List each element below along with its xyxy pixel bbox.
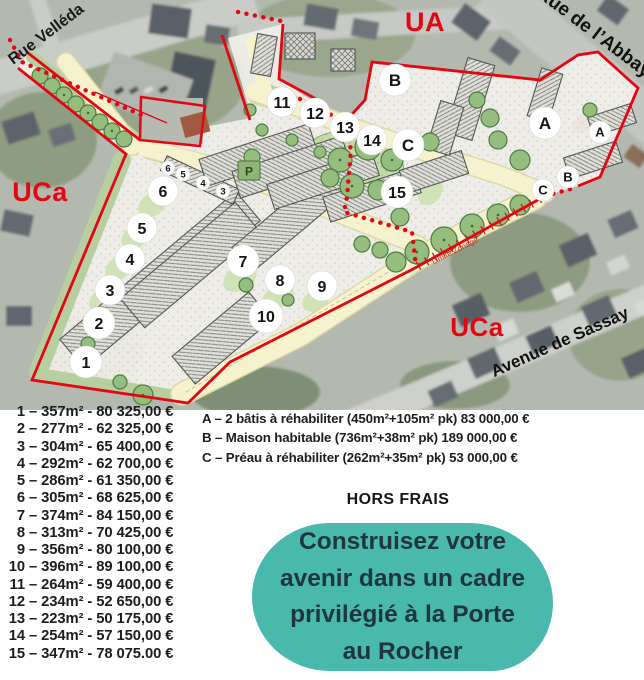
lot-marker-A: A bbox=[589, 121, 611, 143]
lot-marker-6: 6 bbox=[161, 161, 175, 175]
fees-note: HORS FRAIS bbox=[327, 491, 469, 509]
lot-marker-13: 13 bbox=[330, 112, 360, 142]
svg-text:B: B bbox=[563, 170, 572, 185]
svg-text:2: 2 bbox=[95, 316, 104, 333]
lot-price-row: 3 – 304m² - 65 400,00 € bbox=[5, 439, 173, 456]
cta-text-line: Construisez votre bbox=[299, 524, 506, 561]
svg-text:13: 13 bbox=[336, 120, 354, 137]
lot-marker-B: B bbox=[557, 166, 579, 188]
lot-price-row: 8 – 313m² - 70 425,00 € bbox=[5, 525, 173, 542]
svg-text:6: 6 bbox=[165, 163, 170, 174]
lot-price-row: 2 – 277m² - 62 325,00 € bbox=[5, 421, 173, 438]
svg-text:9: 9 bbox=[318, 279, 327, 296]
building-price-list: A – 2 bâtis à réhabiliter (450m²+105m² p… bbox=[202, 409, 529, 467]
zone-label-ua: UA bbox=[405, 7, 445, 37]
svg-text:C: C bbox=[538, 183, 548, 198]
svg-text:5: 5 bbox=[138, 221, 147, 238]
lot-marker-2: 2 bbox=[83, 307, 115, 339]
lot-price-row: 5 – 286m² - 61 350,00 € bbox=[5, 473, 173, 490]
lot-price-row: 1 – 357m² - 80 325,00 € bbox=[5, 404, 173, 421]
svg-text:A: A bbox=[595, 125, 605, 140]
lot-price-row: 14 – 254m² - 57 150,00 € bbox=[5, 628, 173, 645]
svg-text:10: 10 bbox=[257, 309, 275, 326]
lot-price-row: 9 – 356m² - 80 100,00 € bbox=[5, 542, 173, 559]
svg-text:4: 4 bbox=[200, 178, 206, 189]
lot-marker-10: 10 bbox=[249, 299, 283, 333]
svg-text:7: 7 bbox=[239, 254, 248, 271]
svg-text:B: B bbox=[389, 71, 401, 90]
lot-marker-5: 5 bbox=[127, 213, 157, 243]
lot-marker-6: 6 bbox=[148, 176, 178, 206]
parking-label: P bbox=[245, 164, 253, 178]
lot-marker-A: A bbox=[529, 107, 561, 139]
svg-text:A: A bbox=[539, 114, 551, 133]
svg-text:12: 12 bbox=[306, 106, 324, 123]
building-price-row: A – 2 bâtis à réhabiliter (450m²+105m² p… bbox=[202, 409, 529, 428]
zone-label-uca-left: UCa bbox=[12, 177, 68, 207]
lot-marker-11: 11 bbox=[267, 87, 297, 117]
lot-marker-14: 14 bbox=[357, 125, 387, 155]
lot-marker-C: C bbox=[392, 129, 424, 161]
cta-text-line: avenir dans un cadre bbox=[280, 561, 525, 598]
svg-text:1: 1 bbox=[82, 355, 91, 372]
lot-marker-15: 15 bbox=[381, 176, 413, 208]
lot-price-row: 12 – 234m² - 52 650,00 € bbox=[5, 594, 173, 611]
lot-price-row: 6 – 305m² - 68 625,00 € bbox=[5, 490, 173, 507]
lot-marker-C: C bbox=[532, 179, 554, 201]
lot-price-row: 7 – 374m² - 84 150,00 € bbox=[5, 508, 173, 525]
cta-text-line: au Rocher bbox=[343, 634, 463, 671]
zone-label-uca-right: UCa bbox=[450, 312, 504, 342]
svg-text:14: 14 bbox=[363, 133, 381, 150]
lot-price-row: 10 – 396m² - 89 100,00 € bbox=[5, 559, 173, 576]
lot-marker-9: 9 bbox=[307, 271, 337, 301]
building-price-row: B – Maison habitable (736m²+38m² pk) 189… bbox=[202, 428, 529, 447]
site-plan-svg: 123456789101112131415ABCABC6543 UAUCaUCa… bbox=[0, 0, 644, 410]
flyer-page: 123456789101112131415ABCABC6543 UAUCaUCa… bbox=[0, 0, 644, 680]
lot-price-row: 15 – 347m² - 78 075.00 € bbox=[5, 646, 173, 663]
svg-text:15: 15 bbox=[388, 185, 406, 202]
svg-text:4: 4 bbox=[126, 252, 135, 269]
lot-marker-4: 4 bbox=[196, 176, 210, 190]
lot-marker-3: 3 bbox=[216, 184, 230, 198]
svg-text:3: 3 bbox=[106, 283, 115, 300]
svg-text:5: 5 bbox=[180, 169, 186, 180]
svg-text:3: 3 bbox=[220, 186, 225, 197]
svg-text:C: C bbox=[402, 136, 414, 155]
lot-marker-7: 7 bbox=[227, 245, 259, 277]
lot-marker-1: 1 bbox=[70, 346, 102, 378]
cta-banner: Construisez votreavenir dans un cadrepri… bbox=[252, 523, 553, 671]
svg-text:8: 8 bbox=[276, 273, 285, 290]
lot-marker-3: 3 bbox=[95, 275, 125, 305]
svg-text:11: 11 bbox=[274, 95, 291, 112]
lot-marker-8: 8 bbox=[265, 265, 295, 295]
lot-price-row: 13 – 223m² - 50 175,00 € bbox=[5, 611, 173, 628]
lot-marker-B: B bbox=[379, 64, 411, 96]
lot-marker-12: 12 bbox=[300, 98, 330, 128]
lot-marker-5: 5 bbox=[176, 167, 190, 181]
site-plan-map: 123456789101112131415ABCABC6543 UAUCaUCa… bbox=[0, 0, 644, 410]
building-price-row: C – Préau à réhabiliter (262m²+35m² pk) … bbox=[202, 448, 529, 467]
svg-text:6: 6 bbox=[159, 184, 168, 201]
lot-price-list: 1 – 357m² - 80 325,00 €2 – 277m² - 62 32… bbox=[5, 404, 173, 663]
lot-price-row: 4 – 292m² - 62 700,00 € bbox=[5, 456, 173, 473]
lot-price-row: 11 – 264m² - 59 400,00 € bbox=[5, 577, 173, 594]
lot-marker-4: 4 bbox=[115, 244, 145, 274]
cta-text-line: privilégié à la Porte bbox=[290, 597, 515, 634]
